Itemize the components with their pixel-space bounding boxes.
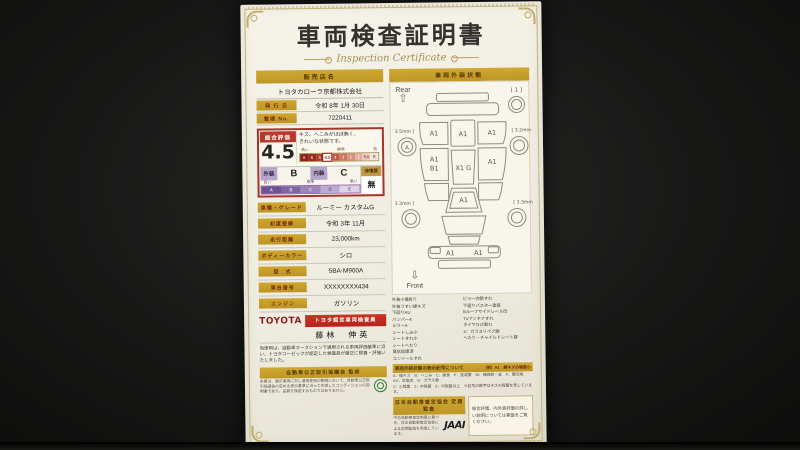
corner-flourish [251, 426, 268, 443]
symbol-note-line2: 1：小程度 2：中程度 3：中程度以上 ※記号の数字はキズの程度を表しています。 [393, 383, 533, 395]
scale-cell: 2 [347, 153, 355, 160]
panel-mark-left-door: A1 [430, 155, 439, 163]
scale-cell: R [370, 153, 378, 160]
inspector-banner: トヨタ認定車両検査員 [305, 314, 386, 327]
spec-row-body-color: ボディーカラー シロ [258, 247, 385, 265]
subtitle-text: Inspection Certificate [336, 52, 446, 64]
spec-row-first-registration: 初度登録 令和 3年 11月 [258, 215, 385, 233]
symbol-legend-banner: 車両外装状態の表示記号について （例）A1 線キズの程度小 [393, 362, 533, 373]
spec-label: 車台番号 [259, 282, 307, 293]
notes-column-right: ピラー内張すれ 下廻りバスター塗装 Bルーフサイドレール凹 TVアンテナすれ タ… [463, 295, 533, 361]
grade-cell: E [340, 185, 360, 192]
corner-flourish [523, 422, 540, 439]
photo-background: 車両検査証明書 Inspection Certificate 販売店名 トヨタカ… [0, 0, 800, 450]
fair-trade-block: 自動車公正取引協議会 監修 本書は、展示車両に対し通常使用の範囲において、自動車… [260, 366, 387, 395]
tread-front-left: [ 3.3mm ] [392, 201, 414, 207]
corner-flourish [518, 7, 535, 24]
ref-number-value: 7220411 [297, 114, 384, 122]
issue-date-label: 発 行 日 [256, 100, 296, 110]
ref-number-row: 整理 No. 7220411 [257, 111, 384, 126]
jaai-note: 中古自動車査定制度に基づき、日本自動車査定協会による定期監査を実施しています。 [393, 416, 442, 437]
symbol-legend-title: 車両外装状態の表示記号について [395, 365, 464, 372]
spec-row-chassis-number: 車台番号 XXXXXXXX434 [259, 279, 386, 297]
repair-history-label: 修復歴 [361, 166, 381, 176]
flourish-left [304, 59, 330, 60]
ref-number-label: 整理 No. [257, 113, 297, 123]
lace-border-bottom [254, 440, 539, 446]
panel-mark-left-quarter: A1 [430, 129, 439, 137]
exterior-condition-panel: 車両外装状態 Rear ⇧ ⇩ Front [389, 67, 533, 436]
panel-mark-right-door: A1 [488, 158, 497, 166]
panel-mark-bumper-left: A1 [446, 249, 455, 257]
rating-scale-bar: S 6 5 4.5 4 3 2 1 RA R [299, 152, 379, 162]
scale-cell-selected: 4.5 [324, 153, 332, 160]
scale-cell: 4 [331, 153, 339, 160]
overall-rating: 総合評価 4.5 [260, 131, 297, 164]
grade-mid-label: 標準 [307, 180, 315, 185]
panel-mark-right-quarter: A1 [488, 129, 497, 137]
scale-cell: 5 [316, 153, 324, 160]
scale-cell: RA [362, 153, 370, 160]
wheel-damage-mark: A [405, 145, 409, 151]
spec-label: 型 式 [259, 266, 307, 277]
grade-scale-bar: A B C D E [261, 184, 361, 194]
spec-row-mileage: 走行距離 23,000km [258, 231, 385, 249]
certificate-title: 車両検査証明書 [240, 14, 541, 53]
spec-row-engine: エンジン ガソリン [259, 295, 386, 313]
symbol-legend-example: （例）A1 線キズの程度小 [483, 364, 531, 371]
rating-comment: キズ、へこみがほぼ無く、 きれいな状態です。 [299, 131, 379, 146]
grade-low-label: 悪い [350, 179, 358, 184]
spec-value: 令和 3年 11月 [306, 218, 385, 228]
spare-tire-mark: [ 1 ] [511, 87, 522, 93]
inspector-name: 藤林 伸英 [299, 329, 386, 341]
repair-history: 修復歴 無 [360, 166, 381, 193]
repair-history-value: 無 [361, 176, 381, 193]
fair-trade-council-logo [374, 379, 387, 392]
note-item: コンソールすれ [393, 355, 462, 362]
spec-value: シロ [306, 250, 385, 260]
spec-value: XXXXXXXX434 [307, 283, 386, 291]
tread-front-right: [ 3.3mm ] [513, 199, 534, 205]
spec-value: 23,000km [306, 235, 385, 243]
certificate: 車両検査証明書 Inspection Certificate 販売店名 トヨタカ… [240, 1, 546, 449]
exterior-grade: B [277, 167, 310, 180]
symbol-explanation: A：線キズ B：へこみ C：腐食 P：塗装要 W：補修跡・波 X：要交換 XX：… [393, 372, 533, 395]
dealer-name: トヨタカローラ京都株式会社 [256, 82, 383, 100]
spec-label: 初度登録 [258, 218, 306, 229]
notes-column-left: 外装小傷有り 外装うすい線キズ 下回りAU バンパーA ミラーA シートしみ小 … [392, 296, 462, 362]
toyota-logo: TOYOTA [259, 316, 302, 327]
lace-border-top [248, 3, 533, 9]
spec-row-model-code: 型 式 5BA-M900A [258, 263, 385, 281]
spec-label: ボディーカラー [258, 250, 306, 261]
grade-cell: D [320, 185, 340, 192]
spec-row-model-grade: 車種・グレード ルーミー カスタムG [258, 199, 385, 217]
corner-flourish [246, 11, 263, 28]
scale-mid-label: 標準 [337, 147, 345, 152]
jaai-logo: JAAI [444, 420, 465, 431]
scale-high-label: 高い [301, 148, 309, 153]
fair-trade-note: 本書は、展示車両に対し通常使用の範囲において、自動車公正取引協議会の定める表示基… [260, 378, 372, 395]
panel-mark-rear-gate: A1 [459, 130, 468, 138]
car-condition-diagram: Rear ⇧ ⇩ Front [389, 80, 532, 295]
issue-date-value: 令和 8年 1月 30日 [296, 100, 383, 110]
grade-high-label: 良い [263, 180, 271, 185]
scale-cell: 6 [308, 153, 316, 160]
spec-label: 走行距離 [258, 234, 306, 245]
scale-cell: S [300, 154, 308, 161]
tread-rear-left: [ 3.5mm ] [392, 129, 414, 135]
scale-cell: 1 [355, 153, 363, 160]
jaai-audit: 日本自動車査定協会 定期監査 中古自動車査定制度に基づき、日本自動車査定協会によ… [393, 396, 465, 436]
scale-low-label: 低 [373, 147, 377, 152]
spec-value: ガソリン [307, 298, 386, 308]
grade-cell: A [262, 186, 282, 193]
car-outline-drawing: [ 1 ] [ 3.5mm ] [ 3.2mm ] A [ 3.3mm ] [ … [392, 87, 534, 289]
jaai-banner: 日本自動車査定協会 定期監査 [393, 396, 465, 415]
overall-rating-score: 4.5 [260, 142, 296, 164]
spec-value: ルーミー カスタムG [306, 202, 385, 212]
vehicle-info-panel: 販売店名 トヨタカローラ京都株式会社 発 行 日 令和 8年 1月 30日 整理… [256, 69, 387, 438]
grade-cell: C [301, 186, 321, 193]
spec-value: 5BA-M900A [307, 267, 386, 275]
audit-block: 日本自動車査定協会 定期監査 中古自動車査定制度に基づき、日本自動車査定協会によ… [393, 396, 533, 437]
interior-grade: C [327, 166, 360, 179]
spec-label: 車種・グレード [258, 202, 306, 213]
rating-comment-line2: きれいな状態です。 [299, 138, 379, 146]
overall-rating-box: 総合評価 4.5 キズ、へこみがほぼ無く、 きれいな状態です。 高い 標準 [257, 127, 385, 197]
tread-rear-right: [ 3.2mm ] [511, 127, 534, 133]
inspection-disclaimer: 当車両は、自動車オークションで通用される車両評価基準に沿い、トヨタユーゼックが認… [259, 341, 386, 364]
grade-cell: B [281, 186, 301, 193]
flourish-right [452, 57, 478, 58]
interior-label: 内装 [310, 167, 327, 180]
exterior-label: 外装 [260, 167, 277, 180]
note-item: へたり・チャイルドシート跡 [463, 334, 532, 341]
fair-trade-banner: 自動車公正取引協議会 監修 [260, 366, 387, 379]
panel-mark-roof: X1 G [455, 164, 471, 172]
panel-mark-bumper-right: A1 [474, 249, 483, 257]
panel-mark-left-door-2: B1 [430, 164, 439, 172]
panel-mark-windshield: A1 [459, 196, 468, 204]
condition-notes-list: 外装小傷有り 外装うすい線キズ 下回りAU バンパーA ミラーA シートしみ小 … [392, 295, 533, 362]
spec-label: エンジン [259, 298, 307, 309]
inspector-block: TOYOTA トヨタ認定車両検査員 藤林 伸英 [259, 314, 386, 342]
scale-cell: 3 [339, 153, 347, 160]
